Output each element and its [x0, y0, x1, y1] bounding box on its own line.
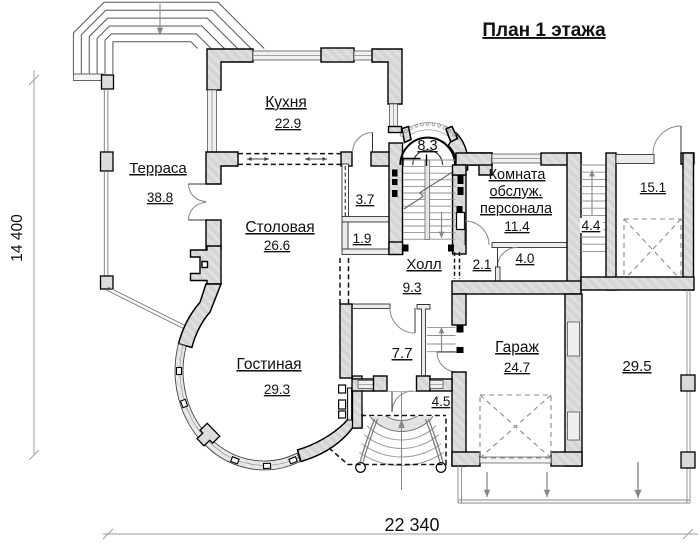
svg-text:7.7: 7.7: [392, 345, 413, 362]
svg-text:Столовая: Столовая: [245, 219, 314, 236]
svg-text:8.3: 8.3: [417, 138, 437, 154]
svg-text:15.1: 15.1: [640, 180, 666, 195]
svg-text:Комната: Комната: [489, 167, 547, 183]
svg-text:4.0: 4.0: [516, 251, 535, 266]
svg-text:4.5: 4.5: [432, 394, 451, 409]
svg-text:Кухня: Кухня: [265, 94, 306, 111]
svg-text:Гараж: Гараж: [495, 339, 539, 356]
svg-text:38.8: 38.8: [147, 190, 173, 205]
svg-text:9.3: 9.3: [403, 280, 422, 295]
svg-text:22.9: 22.9: [275, 116, 301, 131]
svg-text:14 400: 14 400: [9, 214, 26, 262]
svg-text:24.7: 24.7: [504, 360, 530, 375]
svg-text:1.9: 1.9: [353, 231, 372, 246]
svg-text:обслуж.: обслуж.: [489, 184, 542, 200]
svg-text:План 1 этажа: План 1 этажа: [482, 20, 606, 41]
svg-text:11.4: 11.4: [504, 219, 530, 234]
svg-text:4.4: 4.4: [582, 218, 601, 233]
svg-text:26.6: 26.6: [264, 238, 290, 253]
svg-text:22 340: 22 340: [384, 515, 439, 535]
svg-text:Терраса: Терраса: [129, 160, 187, 177]
svg-text:персонала: персонала: [480, 201, 553, 217]
svg-text:Гостиная: Гостиная: [236, 356, 301, 373]
svg-text:29.5: 29.5: [622, 358, 651, 375]
svg-text:3.7: 3.7: [356, 192, 375, 207]
svg-text:2.1: 2.1: [473, 257, 492, 272]
svg-text:29.3: 29.3: [264, 382, 290, 397]
svg-text:Холл: Холл: [406, 256, 441, 273]
